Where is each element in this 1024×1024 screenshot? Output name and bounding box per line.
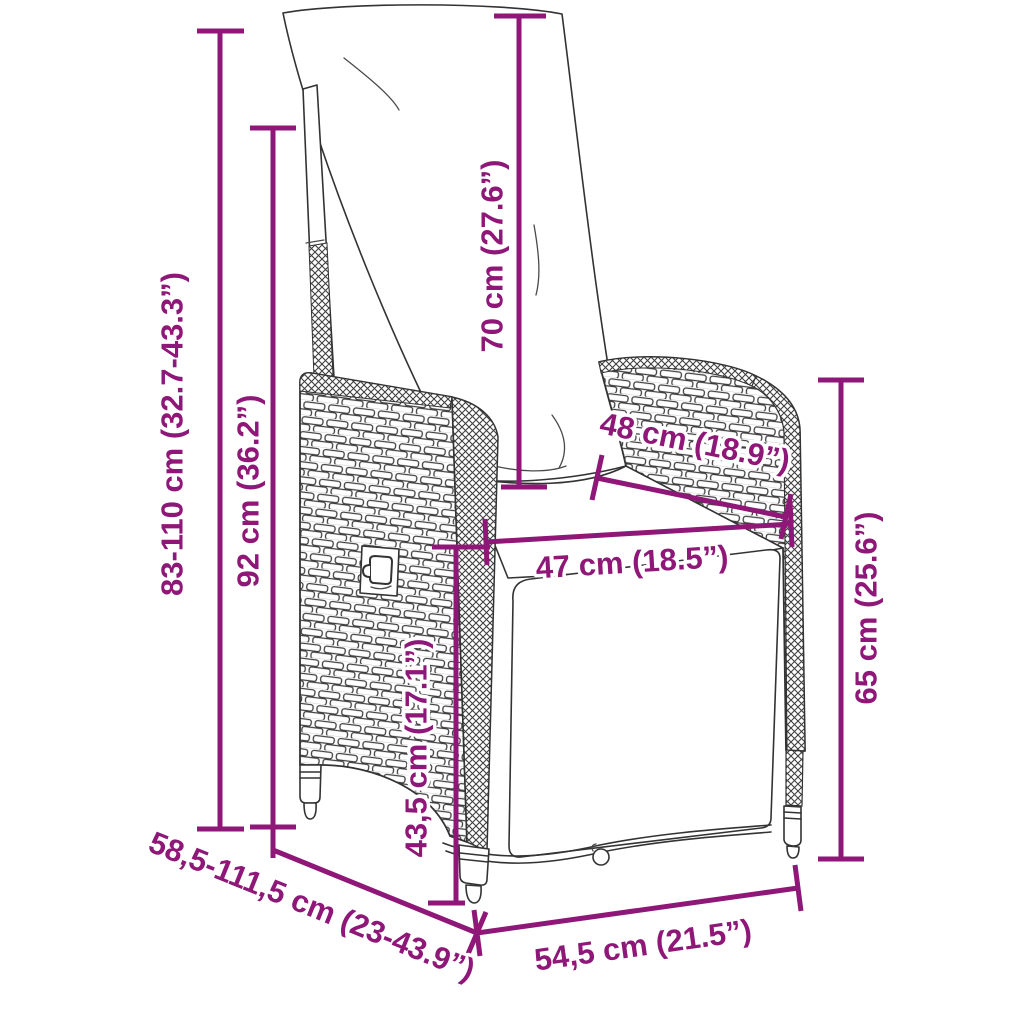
dim-total-height-label: 83-110 cm (32.7-43.3”) [155, 272, 190, 596]
dim-armrest-height-label: 65 cm (25.6”) [849, 512, 884, 705]
recline-knob-icon [360, 546, 399, 596]
dim-seat-height-label: 43,5 cm (17.1”) [399, 639, 434, 858]
front-caster-wheel [593, 849, 609, 865]
right-front-leg [784, 750, 803, 858]
diagram-canvas: 83-110 cm (32.7-43.3”) 92 cm (36.2”) 70 … [0, 0, 1024, 1024]
product-dimension-diagram: 83-110 cm (32.7-43.3”) 92 cm (36.2”) 70 … [0, 0, 1024, 1024]
dim-back-cushion-height-label: 70 cm (27.6”) [475, 160, 510, 353]
dim-backrest-height-label: 92 cm (36.2”) [231, 395, 266, 588]
